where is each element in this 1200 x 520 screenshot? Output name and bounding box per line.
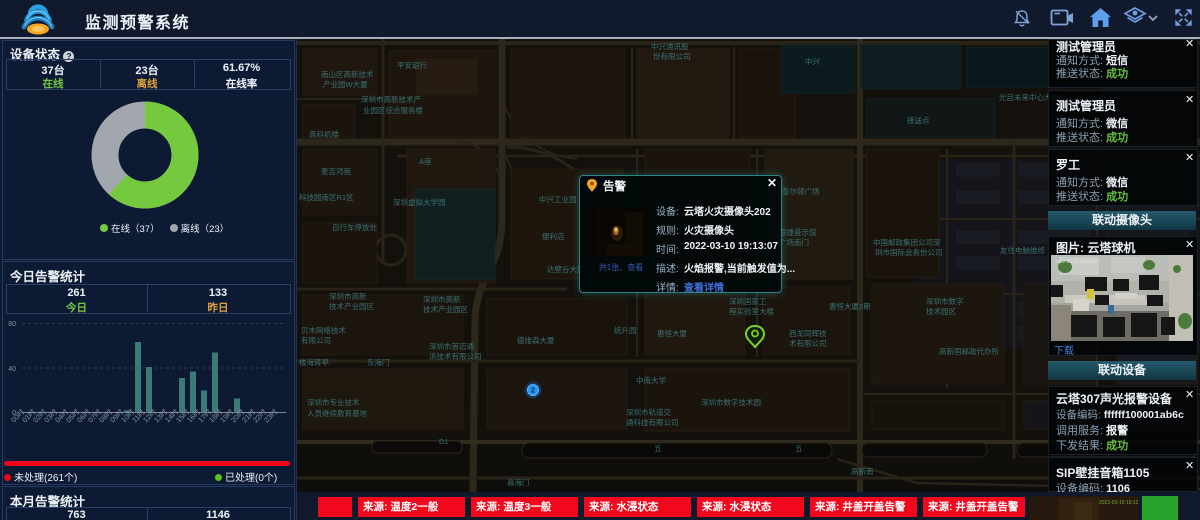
svg-text:2: 2 xyxy=(531,388,535,395)
svg-text:查尔顿广场: 查尔顿广场 xyxy=(782,186,820,196)
svg-text:产业园W大厦: 产业园W大厦 xyxy=(323,79,368,89)
svg-text:中兴通讯股: 中兴通讯股 xyxy=(651,41,689,51)
svg-text:德维森大厦: 德维森大厦 xyxy=(517,335,555,345)
svg-text:技术产业园区: 技术产业园区 xyxy=(329,301,374,311)
svg-text:40: 40 xyxy=(8,366,16,373)
svg-text:统升园: 统升园 xyxy=(614,325,637,335)
svg-text:中兴: 中兴 xyxy=(805,56,820,66)
svg-text:80: 80 xyxy=(8,321,16,328)
svg-text:技术园区: 技术园区 xyxy=(926,306,956,316)
svg-text:通科技有限公司: 通科技有限公司 xyxy=(626,417,679,427)
svg-text:深圳市高新技术产: 深圳市高新技术产 xyxy=(361,94,421,104)
svg-text:贝木网络技术: 贝木网络技术 xyxy=(301,325,346,335)
svg-text:深圳市高新: 深圳市高新 xyxy=(423,294,461,304)
svg-text:中国邮政集团公司深: 中国邮政集团公司深 xyxy=(873,237,941,247)
svg-text:中南大学: 中南大学 xyxy=(636,375,666,385)
svg-text:广场南门: 广场南门 xyxy=(779,237,809,247)
svg-text:深圳市数字: 深圳市数字 xyxy=(926,296,964,306)
svg-text:科技园南区R1区: 科技园南区R1区 xyxy=(299,192,354,202)
svg-text:高科机楼: 高科机楼 xyxy=(309,129,339,139)
svg-text:友住电脑维修: 友住电脑维修 xyxy=(1000,245,1045,255)
svg-text:深圳虚拟大学园: 深圳虚拟大学园 xyxy=(393,197,446,207)
svg-text:银捷曼示馆: 银捷曼示馆 xyxy=(779,227,817,237)
svg-text:麦吉鸿苑: 麦吉鸿苑 xyxy=(321,166,351,176)
svg-text:便利店: 便利店 xyxy=(542,231,565,241)
svg-text:五: 五 xyxy=(795,444,803,453)
svg-text:2022-03-10 19:13:07: 2022-03-10 19:13:07 xyxy=(1055,259,1097,264)
svg-text:程实验室大楼: 程实验室大楼 xyxy=(729,306,774,316)
svg-text:惠恒大厦2期: 惠恒大厦2期 xyxy=(829,301,871,311)
svg-text:中兴工业园: 中兴工业园 xyxy=(539,194,577,204)
svg-text:有限公司: 有限公司 xyxy=(301,335,331,345)
svg-text:术有限公司: 术有限公司 xyxy=(789,338,827,348)
svg-text:深圳国家工: 深圳国家工 xyxy=(729,296,767,306)
svg-text:东海门: 东海门 xyxy=(367,357,390,367)
svg-text:高新国邮政代办所: 高新国邮政代办所 xyxy=(939,346,999,356)
svg-text:圳市国际会务份公司: 圳市国际会务份公司 xyxy=(875,247,943,257)
svg-text:西龙同辉技: 西龙同辉技 xyxy=(789,328,827,338)
svg-text:接送点: 接送点 xyxy=(907,115,930,125)
svg-text:人员继续教育基地: 人员继续教育基地 xyxy=(307,408,367,418)
svg-text:深圳市专业技术: 深圳市专业技术 xyxy=(307,397,360,407)
svg-text:深圳市轨道交: 深圳市轨道交 xyxy=(626,407,671,417)
svg-text:深圳市高新: 深圳市高新 xyxy=(329,291,367,301)
svg-text:楼海蒋亭: 楼海蒋亭 xyxy=(299,357,329,367)
svg-text:浜技术有限公司: 浜技术有限公司 xyxy=(429,351,482,361)
svg-text:2022-03-10 19:13: 2022-03-10 19:13 xyxy=(1099,500,1138,506)
svg-text:平安银行: 平安银行 xyxy=(397,60,427,70)
svg-text:技术产业园区: 技术产业园区 xyxy=(423,304,468,314)
svg-text:深圳市数字技术园: 深圳市数字技术园 xyxy=(701,397,761,407)
svg-text:五: 五 xyxy=(654,444,662,453)
svg-text:深圳市首迈通: 深圳市首迈通 xyxy=(429,341,474,351)
svg-text:A座: A座 xyxy=(419,156,432,166)
svg-text:业园区综合服务楼: 业园区综合服务楼 xyxy=(363,105,423,115)
svg-text:南山区高新技术: 南山区高新技术 xyxy=(321,69,374,79)
svg-text:惠恒大厦: 惠恒大厦 xyxy=(657,328,687,338)
svg-text:高新南: 高新南 xyxy=(851,466,874,476)
svg-text:D1: D1 xyxy=(439,437,449,446)
svg-text:份有限公司: 份有限公司 xyxy=(653,51,691,61)
svg-text:自行车停放处: 自行车停放处 xyxy=(332,222,377,232)
svg-text:23时: 23时 xyxy=(262,407,279,424)
svg-text:喜海门: 喜海门 xyxy=(507,477,530,487)
